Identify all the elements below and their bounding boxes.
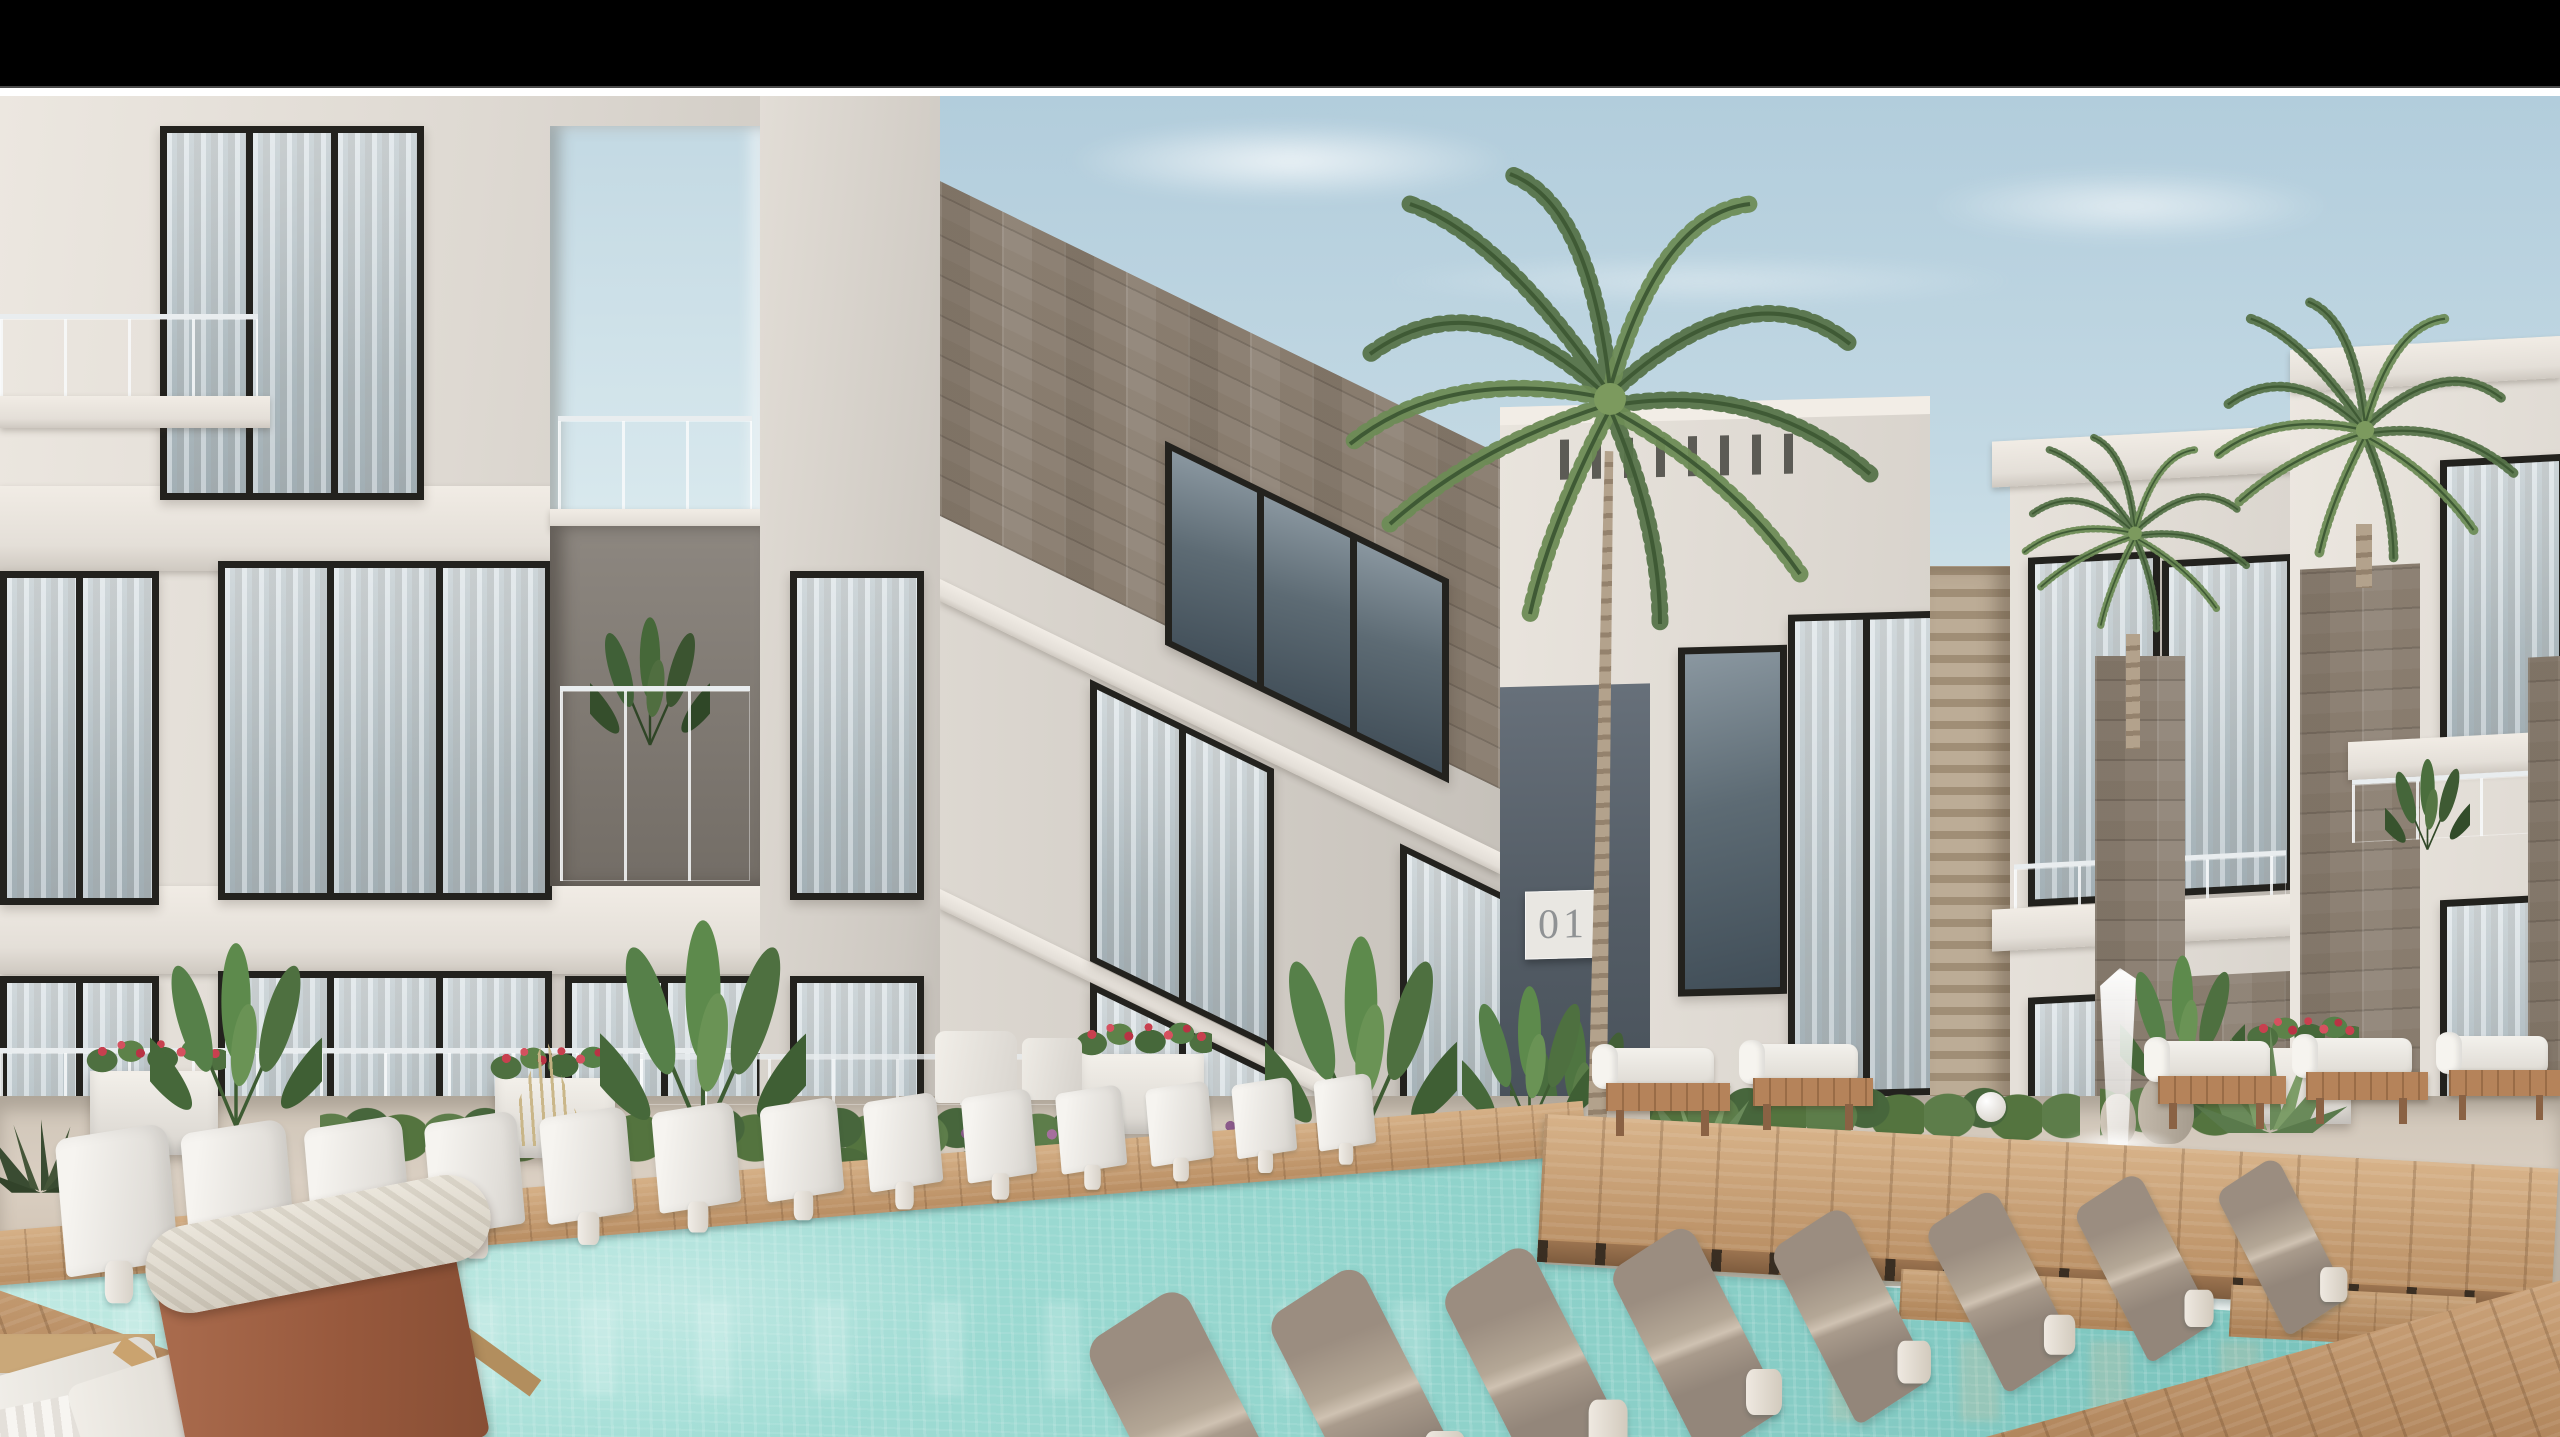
sunbed-base <box>2449 1070 2560 1097</box>
tan-pool-lounger <box>1638 1236 1768 1437</box>
palm-tree-canopy <box>2205 284 2525 582</box>
lounger-cupholder <box>578 1212 600 1245</box>
lounger-backrest <box>1231 1076 1297 1159</box>
lounger-backrest <box>961 1088 1038 1184</box>
lounger-cupholder <box>1258 1150 1273 1173</box>
palm-trunk <box>2126 634 2140 749</box>
window-pane <box>253 133 332 493</box>
pool-lounger <box>543 1112 630 1249</box>
window-pane <box>225 568 327 893</box>
screenshot-root: 01 <box>0 0 2560 1437</box>
lounger-cupholder <box>1424 1431 1465 1437</box>
window-pane <box>167 133 246 493</box>
window-pane <box>443 568 545 893</box>
balcony-glass-railing <box>0 314 258 407</box>
recessed-balcony <box>550 526 760 886</box>
tan-pool-lounger <box>2097 1182 2202 1368</box>
red-flowers <box>1076 1020 1208 1056</box>
window <box>1788 611 1944 1099</box>
window-pane <box>797 578 917 893</box>
window <box>1678 645 1787 997</box>
sunbed-leg <box>2169 1103 2177 1129</box>
sunbed-leg <box>1616 1110 1624 1136</box>
tan-pool-lounger <box>1797 1217 1918 1431</box>
balcony-plant <box>2385 756 2470 854</box>
lounger-cupholder <box>896 1181 914 1209</box>
lounger-cupholder <box>1339 1143 1353 1165</box>
cloud <box>1850 156 2410 256</box>
lounger-backrest <box>1313 1073 1376 1152</box>
pool-lounger <box>964 1093 1034 1203</box>
lounger-backrest <box>759 1096 844 1203</box>
pool-lounger <box>1316 1077 1374 1167</box>
window <box>218 561 552 900</box>
tan-pool-lounger <box>2238 1166 2337 1341</box>
lounger-backrest <box>1145 1080 1214 1167</box>
palm-trunk-texture-column <box>1930 566 2010 1161</box>
sunbed-base <box>2158 1076 2286 1104</box>
window <box>0 571 159 905</box>
window-pane <box>1186 733 1268 1041</box>
lounger-cupholder <box>2320 1267 2347 1302</box>
wooden-sunbed <box>2150 1041 2286 1129</box>
balcony-glass-railing <box>560 686 750 881</box>
window <box>160 126 424 500</box>
palm-tree-canopy <box>1330 144 1890 664</box>
wooden-sunbed <box>1598 1048 1730 1136</box>
sunbed-leg <box>2316 1098 2324 1124</box>
wooden-sunbed <box>1745 1044 1873 1130</box>
window-pane <box>1870 618 1938 1090</box>
window-pane <box>1795 620 1863 1092</box>
pool-lounger <box>1058 1089 1124 1193</box>
lounger-cupholder <box>1897 1341 1930 1384</box>
lounger-backrest <box>651 1101 741 1214</box>
window-pane <box>1172 451 1257 683</box>
lounger-cupholder <box>2044 1315 2075 1355</box>
sunbed-base <box>1753 1078 1873 1106</box>
lounger-cupholder <box>1084 1165 1101 1190</box>
building-number-plaque: 01 <box>1525 890 1601 960</box>
tan-pool-lounger <box>1300 1278 1450 1437</box>
frame-white-edge <box>0 88 2560 96</box>
lounger-cupholder <box>794 1191 813 1220</box>
sunbed-leg <box>1701 1110 1709 1136</box>
balcony-slab <box>0 396 270 428</box>
tan-pool-lounger <box>1472 1256 1612 1437</box>
balcony-glass-railing <box>558 416 752 516</box>
brown-lounge-chair <box>115 1214 555 1437</box>
window-pane <box>1685 652 1780 989</box>
lounger-backrest <box>863 1091 944 1193</box>
wooden-sunbed <box>2442 1036 2560 1120</box>
banana-plant <box>150 941 322 1131</box>
window-pane <box>338 133 417 493</box>
window-pane <box>7 578 76 898</box>
window <box>790 571 924 900</box>
sphere-lamp <box>1976 1092 2006 1122</box>
lounger-backrest <box>539 1105 635 1225</box>
pool-lounger <box>1148 1085 1211 1184</box>
tan-pool-lounger <box>1120 1301 1279 1437</box>
window-pane <box>334 568 436 893</box>
window-pane <box>1097 690 1179 998</box>
pool-lounger <box>655 1107 738 1236</box>
lounger-cupholder <box>992 1173 1010 1199</box>
building-number-text: 01 <box>1538 900 1588 949</box>
wooden-sunbed <box>2298 1038 2428 1124</box>
window-pane <box>83 578 152 898</box>
sunbed-leg <box>2536 1095 2543 1120</box>
pool-lounger <box>866 1097 940 1213</box>
sunbed-base <box>2306 1072 2428 1100</box>
render-scene: 01 <box>0 96 2560 1437</box>
lounger-cupholder <box>688 1201 709 1232</box>
sunbed-leg <box>2256 1103 2264 1129</box>
sunbed-base <box>1606 1083 1730 1111</box>
lounger-cupholder <box>1589 1400 1628 1437</box>
pool-lounger <box>1234 1081 1294 1176</box>
lounger-cupholder <box>2184 1290 2213 1327</box>
lounger-backrest <box>1055 1084 1127 1175</box>
sunbed-leg <box>1845 1104 1853 1130</box>
pool-lounger <box>763 1102 841 1224</box>
sunbed-leg <box>2459 1095 2466 1120</box>
roof-terrace-opening <box>550 126 760 526</box>
lounger-cupholder <box>1746 1369 1782 1415</box>
sunbed-leg <box>1763 1104 1771 1130</box>
tan-pool-lounger <box>1950 1199 2063 1399</box>
sunbed-leg <box>2399 1098 2407 1124</box>
lounger-cupholder <box>1173 1157 1189 1181</box>
letterbox-bar <box>0 0 2560 88</box>
